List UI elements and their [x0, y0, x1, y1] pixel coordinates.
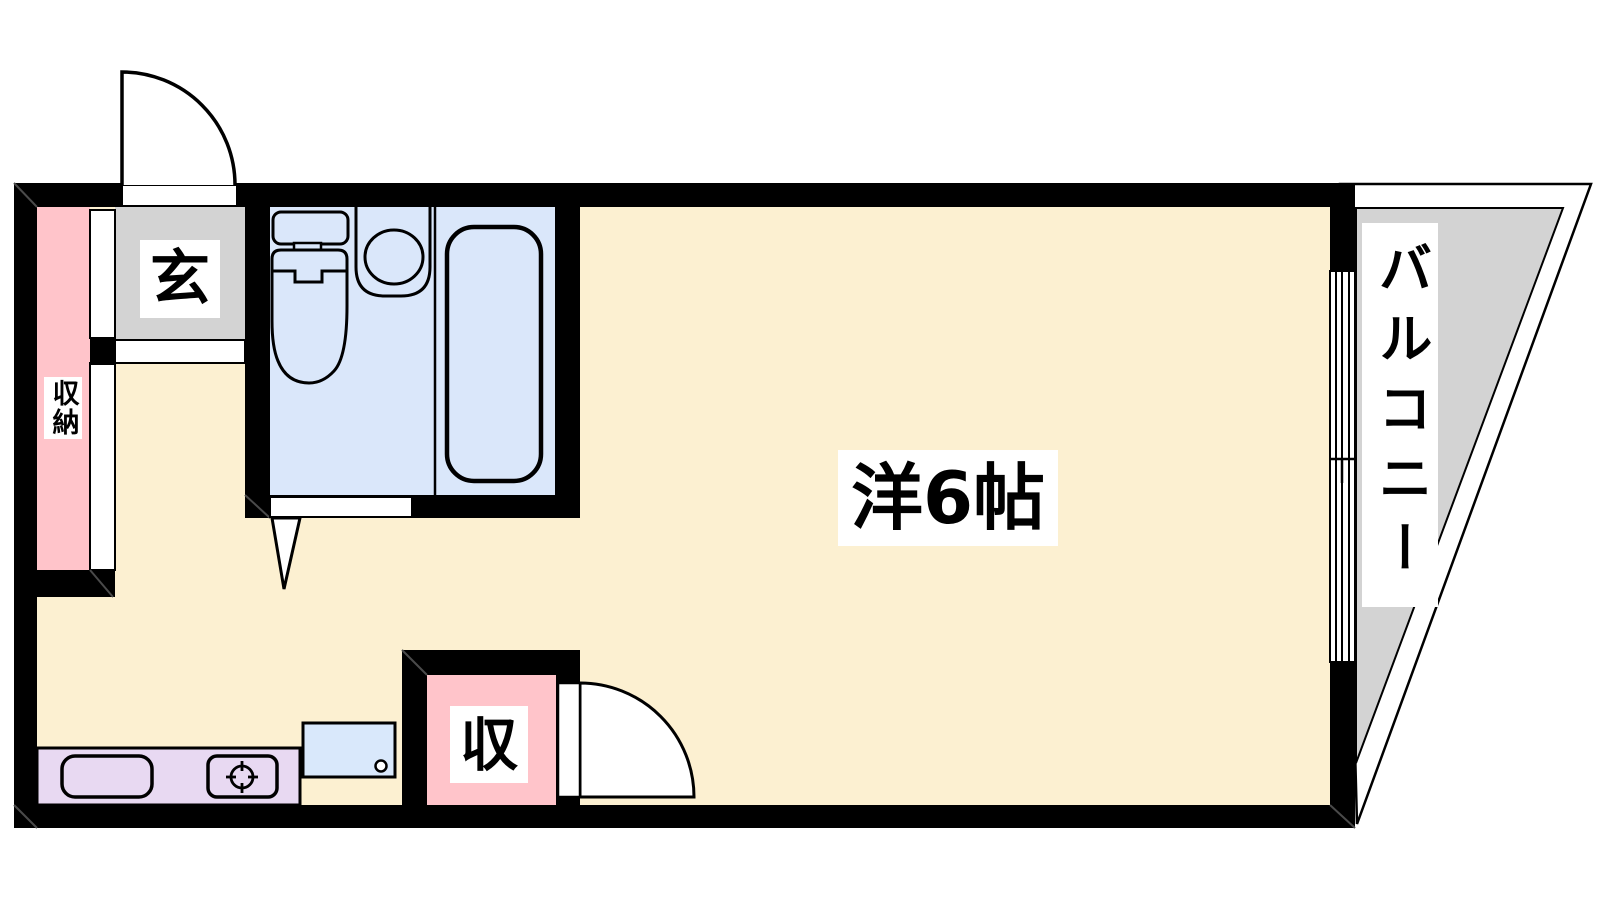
wall-right-upper: [1330, 183, 1355, 271]
bathroom-door-opening: [270, 497, 412, 517]
entrance-door-swing: [122, 72, 235, 185]
wall-left: [14, 183, 37, 828]
washing-machine-pan: [303, 723, 395, 777]
entrance-step: [115, 340, 245, 363]
closet-bottom-label: 収: [450, 706, 528, 783]
kitchen: [37, 748, 300, 805]
wall-bottom: [14, 805, 1355, 828]
entrance-door-opening: [122, 185, 237, 206]
entrance-label: 玄: [140, 240, 220, 318]
room-door-leaf: [558, 683, 580, 797]
wall-bathroom-left: [245, 183, 270, 518]
toilet: [272, 212, 348, 383]
closet-left-door-upper: [90, 210, 115, 338]
kitchen-sink: [62, 756, 152, 797]
floorplan-canvas: 玄 収納 洋6帖 収 バルコニー: [0, 0, 1600, 900]
sliding-window: [1330, 271, 1355, 662]
toilet-tank: [273, 212, 348, 244]
closet-left-label: 収納: [44, 377, 82, 439]
wall-step-block: [90, 338, 115, 365]
floorplan-drawing: [0, 0, 1600, 900]
balcony-label: バルコニー: [1362, 223, 1438, 607]
sink: [356, 207, 430, 296]
sink-bowl: [365, 230, 423, 284]
closet-left-door-lower: [90, 363, 115, 570]
wall-bathroom-right: [555, 183, 580, 518]
wall-right-lower: [1330, 662, 1355, 828]
main-room-label: 洋6帖: [838, 450, 1058, 546]
washing-machine-faucet: [376, 761, 387, 772]
wall-closet-cap: [37, 570, 115, 597]
bathtub: [447, 227, 541, 481]
